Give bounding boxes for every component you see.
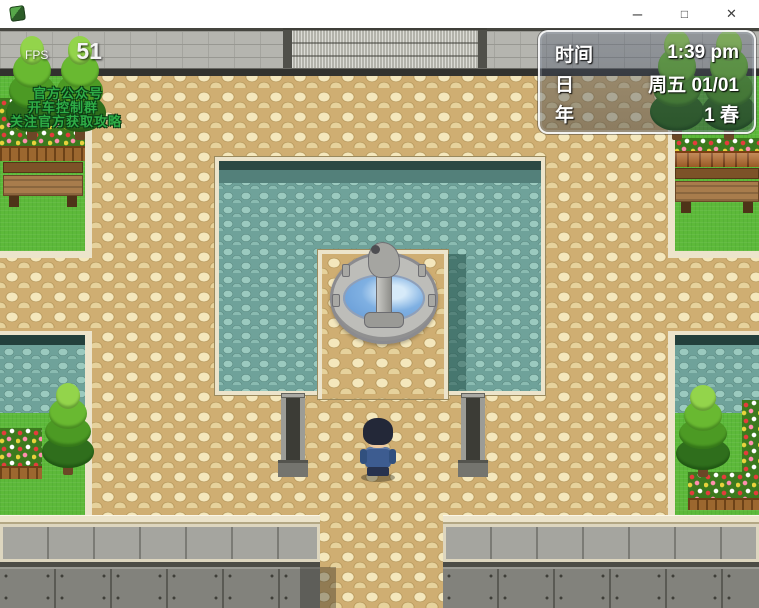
time-row: 时间 1:39 pm (540, 38, 754, 68)
promo-text-line-3: 关注官方获取攻略 (10, 111, 122, 130)
bench-backrest (3, 162, 83, 173)
time-panel: 时间 1:39 pm 日 周五 01/01 年 1 春 (538, 30, 756, 134)
close-icon: ✕ (726, 6, 737, 22)
fps-label: FPS (25, 48, 48, 62)
flower-pots-top-right (675, 151, 759, 167)
lamp-slot (281, 398, 305, 460)
maximize-icon: □ (681, 7, 688, 21)
bench-leg (743, 202, 753, 213)
minimize-button[interactable]: – (614, 0, 661, 28)
time-value: 1:39 pm (667, 42, 739, 64)
fountain-post (418, 264, 426, 277)
player-hair (363, 418, 393, 445)
bench-seat (3, 175, 83, 196)
year-label: 年 (555, 100, 574, 127)
fountain-base (364, 312, 404, 328)
fountain-post (342, 264, 350, 277)
player-arm (389, 449, 396, 464)
day-row: 日 周五 01/01 (540, 68, 754, 98)
lamp-base (278, 460, 308, 477)
tree-layer (690, 385, 716, 411)
app-icon (9, 5, 26, 22)
lamp-base (458, 460, 488, 477)
lamp-post-right (461, 393, 485, 477)
wall-shadow-on-path (300, 567, 336, 608)
bottom-wall-left (0, 515, 320, 608)
game-viewport[interactable]: 官方公众号 开车控制群 关注官方获取攻略 FPS 51 时间 1:39 pm 日… (0, 28, 759, 608)
pine-tree (676, 385, 730, 477)
maximize-button[interactable]: □ (661, 0, 708, 28)
wall-trim (443, 515, 759, 524)
time-label: 时间 (555, 40, 593, 67)
player-character (356, 418, 400, 482)
bench-leg (9, 196, 19, 207)
bench-leg (67, 196, 77, 207)
flower-bed-right-edge (742, 400, 759, 474)
wall-riveted (0, 567, 320, 608)
player-arm (360, 449, 367, 464)
bench-backrest (675, 168, 759, 179)
minimize-icon: – (633, 9, 642, 19)
metal-wall-panel (283, 28, 487, 68)
pine-tree (42, 383, 94, 475)
player-body (365, 447, 391, 468)
fountain-post (428, 294, 436, 307)
close-button[interactable]: ✕ (708, 0, 755, 28)
fountain (330, 252, 438, 344)
lamp-post-left (281, 393, 305, 477)
pond-shadow-right (675, 335, 759, 345)
bench-leg (681, 202, 691, 213)
year-value: 1 春 (704, 100, 739, 127)
pond-shadow-left (0, 335, 85, 345)
flower-bed-bottom-left (0, 428, 42, 468)
window-titlebar[interactable]: – □ ✕ (0, 0, 759, 28)
player-legs (367, 467, 389, 476)
fountain-statue (368, 242, 400, 278)
bottom-wall-right (443, 515, 759, 608)
bench-right (675, 168, 759, 214)
wall-riveted (443, 567, 759, 608)
day-value: 周五 01/01 (648, 70, 739, 97)
tree-layer (56, 383, 81, 409)
year-row: 年 1 春 (540, 98, 754, 128)
courtyard-shadow-dark (219, 161, 541, 170)
fps-value: 51 (76, 38, 102, 65)
lamp-slot (461, 398, 485, 460)
bench-left (3, 162, 83, 208)
flower-planter-bottom-left (0, 466, 42, 479)
flower-planter-bottom-right (688, 498, 759, 510)
courtyard-shadow (219, 170, 541, 183)
wall-panels (0, 524, 320, 562)
flower-planter-top-left (0, 146, 85, 161)
window-controls: – □ ✕ (614, 0, 755, 28)
wall-panels (443, 524, 759, 562)
fountain-post (332, 294, 340, 307)
fps-counter: FPS 51 (25, 38, 102, 65)
walkway-shadow (448, 254, 466, 391)
day-label: 日 (555, 70, 574, 97)
flower-bed-top-right (675, 138, 759, 152)
bench-seat (675, 181, 759, 202)
wall-trim (0, 515, 320, 524)
